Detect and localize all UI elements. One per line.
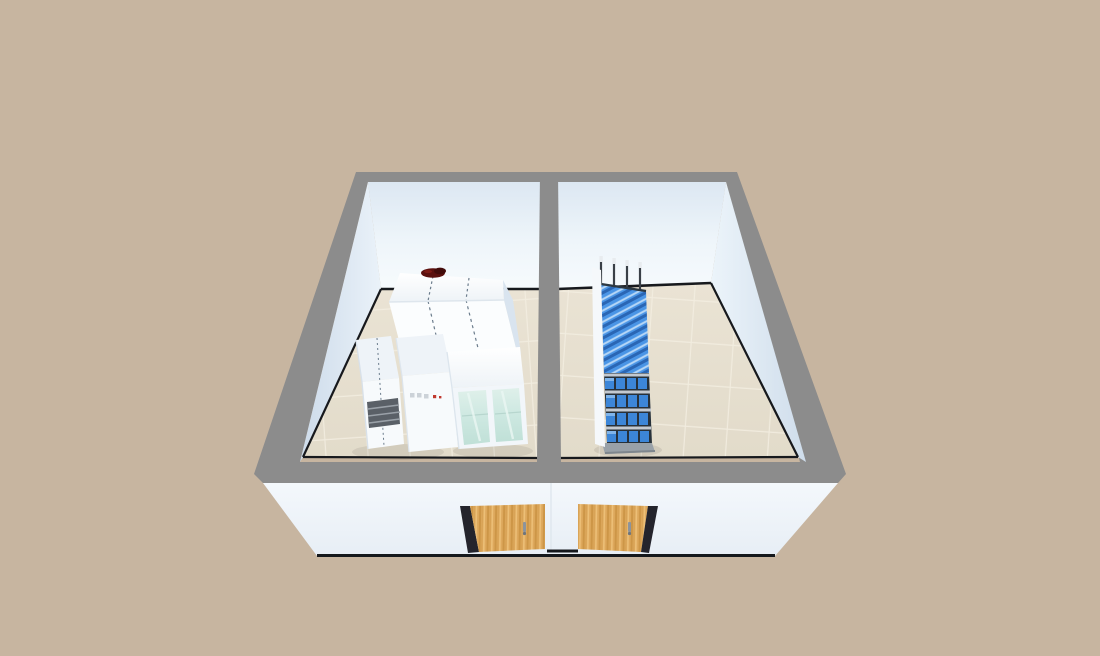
left-door-panel bbox=[470, 504, 545, 552]
building[interactable] bbox=[254, 172, 846, 556]
rack-bin bbox=[617, 413, 626, 425]
indicator-light bbox=[410, 393, 415, 398]
rack-bin-top bbox=[606, 413, 615, 416]
rack-post-tip bbox=[625, 260, 628, 266]
rack-bin bbox=[617, 395, 626, 407]
indicator-light bbox=[424, 394, 429, 399]
right-door-handle bbox=[628, 522, 631, 532]
left-entry-door[interactable] bbox=[460, 504, 545, 553]
rack-bin bbox=[639, 413, 648, 425]
glass-door-cabinet[interactable] bbox=[447, 347, 528, 449]
floorplan-3d-viewport[interactable] bbox=[0, 0, 1100, 656]
rack-post-tip bbox=[638, 262, 641, 268]
indicator-cabinet-front bbox=[402, 372, 458, 452]
right-door-keyhole bbox=[628, 532, 631, 535]
rack-bin-top bbox=[605, 378, 614, 381]
red-object-dark-part bbox=[434, 268, 446, 275]
rack-bin-top bbox=[607, 431, 616, 434]
rack-bin-top bbox=[606, 395, 615, 398]
indicator-light bbox=[417, 393, 422, 398]
rack-bin bbox=[618, 431, 627, 442]
right-door-panel bbox=[578, 504, 648, 552]
rack-post-tip bbox=[599, 256, 602, 262]
rack-bin bbox=[628, 395, 637, 407]
front-facade[interactable] bbox=[263, 483, 838, 556]
rack-bin bbox=[616, 378, 625, 389]
rack-bin bbox=[639, 395, 648, 407]
right-room-front-skirting bbox=[557, 457, 798, 458]
right-entry-door[interactable] bbox=[578, 504, 658, 553]
rack-bin bbox=[629, 431, 638, 442]
red-object-highlight bbox=[424, 270, 432, 273]
indicator-light-red bbox=[433, 395, 436, 398]
rack-bin bbox=[640, 431, 649, 442]
rack-post-tip bbox=[612, 258, 615, 264]
rack-bin bbox=[628, 413, 637, 425]
rack-upper-bins bbox=[601, 284, 649, 373]
indicator-cabinet-top bbox=[396, 334, 451, 376]
glass-cabinet-top bbox=[447, 347, 524, 388]
rack-bin bbox=[638, 378, 647, 389]
left-door-keyhole bbox=[523, 532, 526, 535]
rack-bin bbox=[627, 378, 636, 389]
indicator-light-red bbox=[439, 396, 441, 398]
left-room-back-wall bbox=[368, 182, 541, 289]
divider-wall-top[interactable] bbox=[537, 172, 561, 462]
left-door-handle bbox=[523, 522, 526, 532]
right-room-back-wall bbox=[557, 182, 726, 289]
